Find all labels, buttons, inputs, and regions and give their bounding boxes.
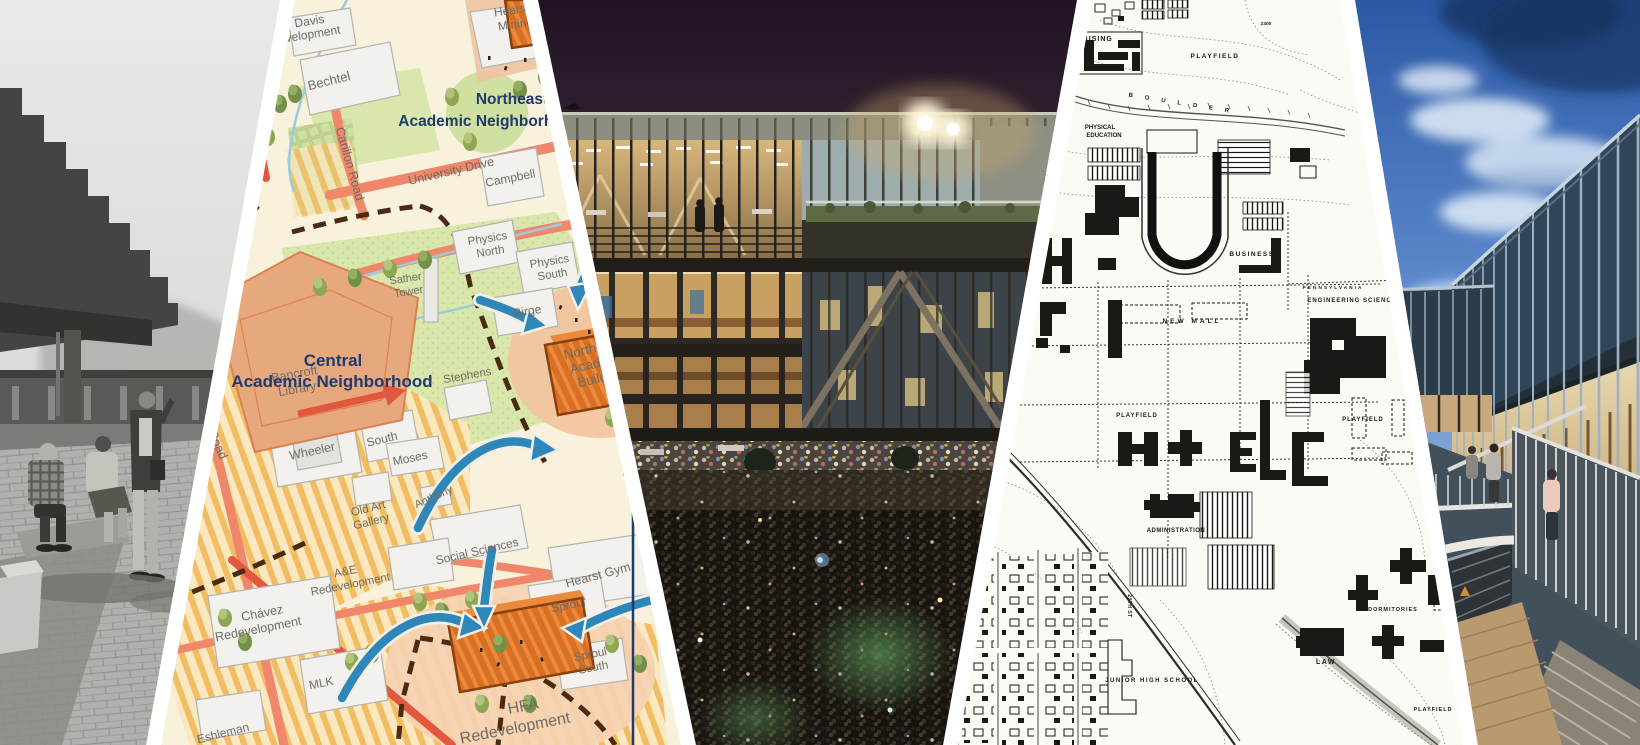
label-northeast-1: Northeast: [476, 91, 548, 108]
label-new-mall: NEW MALL: [1162, 318, 1221, 325]
label-playfield-top: PLAYFIELD: [1190, 53, 1239, 60]
campus-collage: Davis Development Bechtel Hearst Mining …: [0, 0, 1640, 745]
label-engineering-science: ENGINEERING SCIENCE: [1307, 298, 1396, 304]
label-law: LAW: [1316, 659, 1336, 666]
concrete-planter: [0, 560, 44, 654]
label-contour-2300: 2300: [1261, 21, 1272, 27]
label-physical: PHYSICAL: [1085, 125, 1116, 131]
label-playfield-bottom: PLAYFIELD: [1413, 707, 1452, 713]
label-education: EDUCATION: [1086, 133, 1121, 139]
night-building: [538, 84, 1090, 441]
label-central-1: Central: [304, 351, 363, 370]
label-central-2: Academic Neighborhood: [231, 372, 432, 391]
label-administration: ADMINISTRATION: [1147, 528, 1206, 534]
label-playfield-left: PLAYFIELD: [1116, 413, 1158, 419]
label-dormitories: DORMITORIES: [1368, 607, 1418, 613]
label-business: BUSINESS: [1229, 251, 1274, 258]
label-housing: HOUSING: [1073, 36, 1113, 43]
label-northeast-2: Academic Neighborhood: [398, 113, 581, 130]
bw-background-building: [0, 370, 252, 454]
label-20th-st: 20TH ST: [1126, 594, 1132, 618]
upper-lit-level: [540, 140, 802, 260]
label-pennsylvania: PENNSYLVANIA: [1303, 285, 1364, 291]
label-playfield-right: PLAYFIELD: [1342, 417, 1384, 423]
floodlights: [845, 84, 1035, 180]
label-junior-high: JUNIOR HIGH SCHOOL: [1105, 678, 1199, 684]
